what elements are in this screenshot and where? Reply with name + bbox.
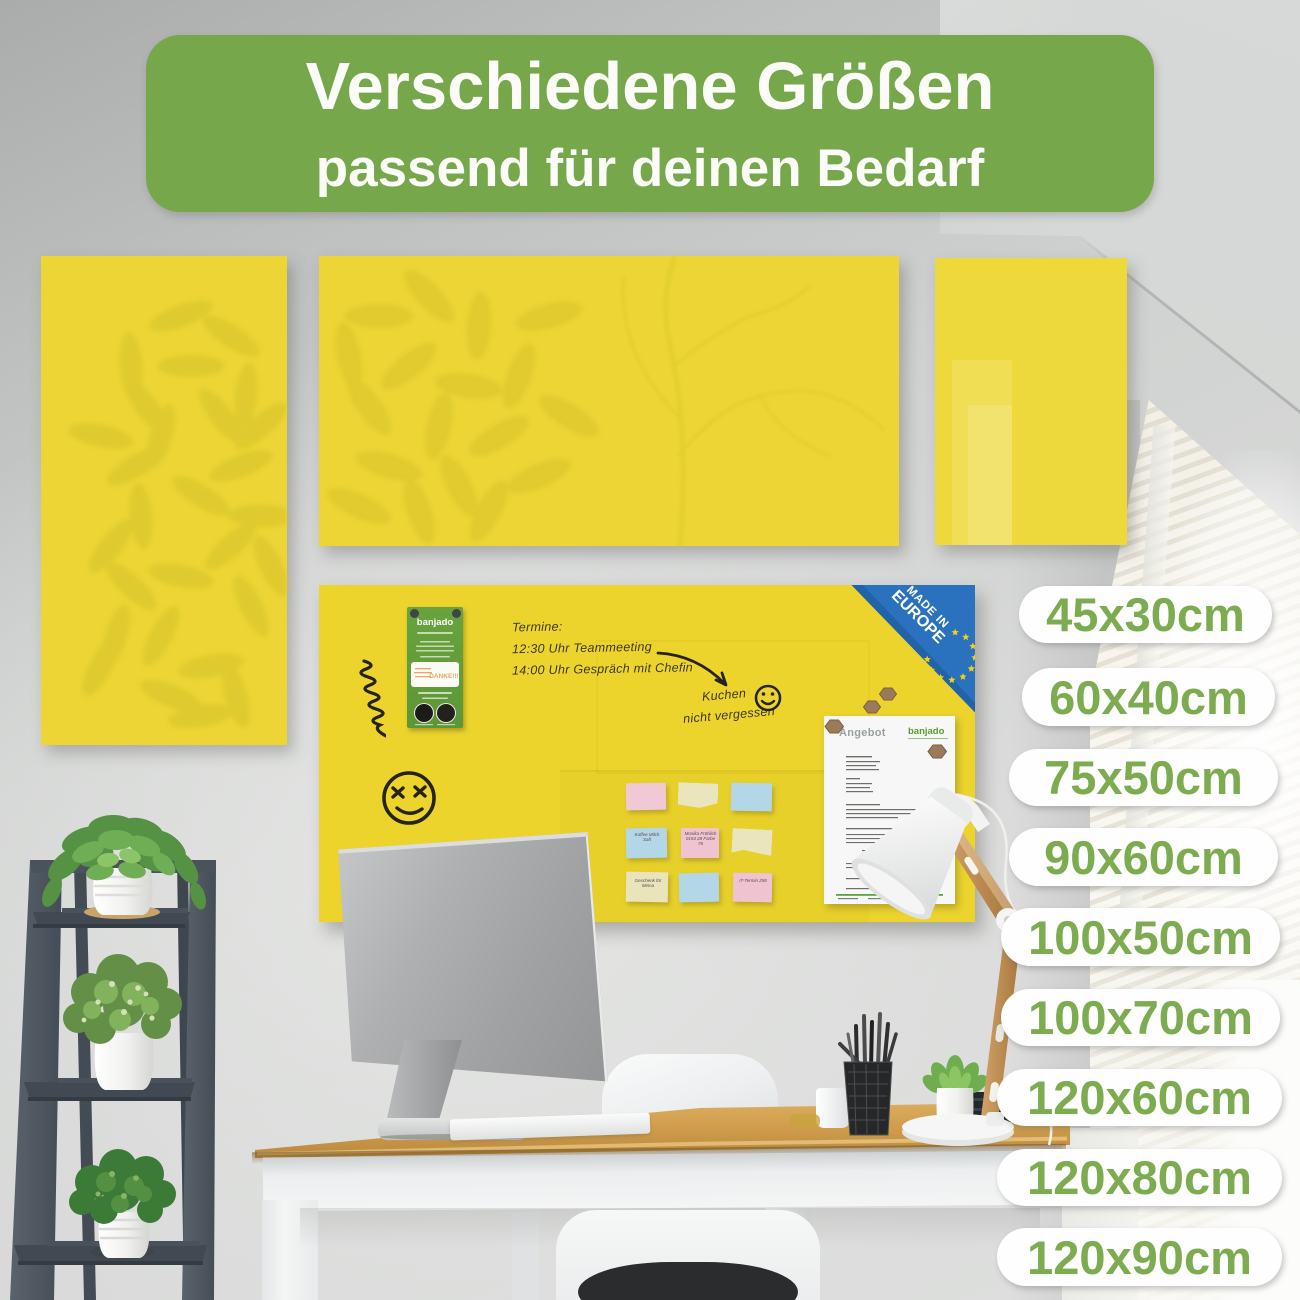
svg-text:DANKE!!!: DANKE!!! [429, 673, 459, 680]
